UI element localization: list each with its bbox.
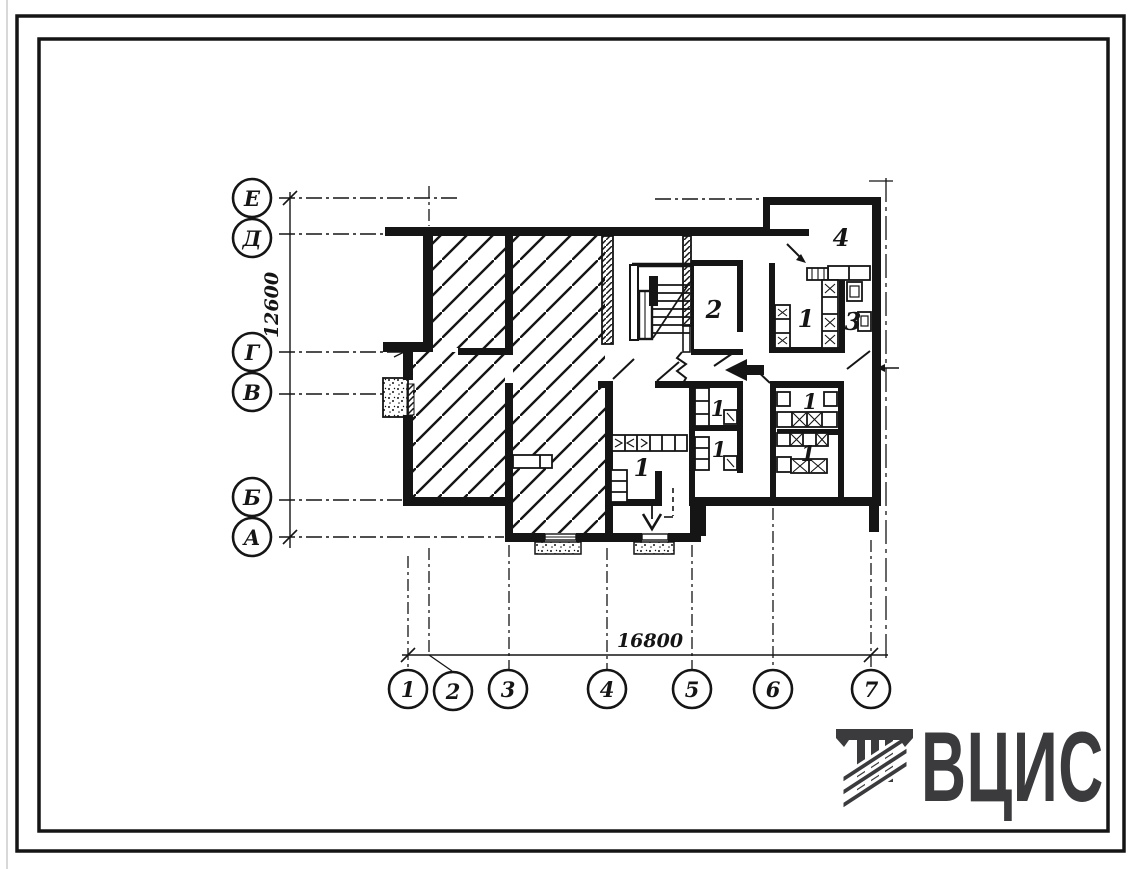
room-label-1a: 1: [798, 304, 815, 333]
logo-text: ВЦИС: [921, 711, 1104, 822]
corridor-arrow: [725, 359, 764, 381]
staircase: [630, 265, 691, 340]
logo-icon: [836, 729, 913, 810]
room-label-1e: 1: [801, 441, 816, 466]
horizontal-dimension-label: 16800: [617, 630, 683, 652]
row-axis-label-a: А: [241, 525, 260, 550]
room-label-1d: 1: [803, 389, 818, 414]
vertical-dimension-label: 12600: [261, 272, 283, 338]
logo: ВЦИС: [836, 711, 1104, 822]
room-label-2: 2: [705, 295, 723, 324]
room-label-4: 4: [833, 223, 850, 252]
blueprint-page: 4 2 1 3 1 1 1 1 1: [0, 0, 1139, 869]
col-axis-label-2: 2: [445, 679, 461, 704]
col-axis-label-6: 6: [766, 677, 781, 702]
row-axis-label-v: В: [242, 380, 261, 405]
col-axis-label-3: 3: [501, 677, 516, 702]
col-axis-label-4: 4: [600, 677, 615, 702]
dimension-horizontal: 16800: [401, 630, 888, 662]
blueprint-canvas: 4 2 1 3 1 1 1 1 1: [0, 0, 1139, 869]
row-axis-label-g: Г: [244, 340, 261, 365]
scan-edge-artifact: [6, 0, 8, 869]
col-axis-circles: [389, 670, 890, 710]
row-axis-label-e: Е: [243, 186, 261, 211]
col-axis-label-5: 5: [685, 677, 700, 702]
left-window-block: [383, 378, 408, 417]
col-axis-label-1: 1: [401, 677, 416, 702]
room-label-1c: 1: [712, 437, 727, 462]
axis2-bend-leader: [429, 655, 452, 671]
room-label-1b: 1: [711, 396, 726, 421]
col-axis-label-7: 7: [864, 677, 879, 702]
window-sill: [535, 542, 581, 554]
entrance-step: [634, 542, 674, 554]
room-label-3: 3: [845, 307, 862, 336]
room-label-1f: 1: [634, 453, 651, 482]
row-axis-label-d: Д: [242, 226, 263, 251]
floor-plan: 4 2 1 3 1 1 1 1 1: [383, 197, 881, 554]
row-axis-label-b: Б: [242, 485, 261, 510]
